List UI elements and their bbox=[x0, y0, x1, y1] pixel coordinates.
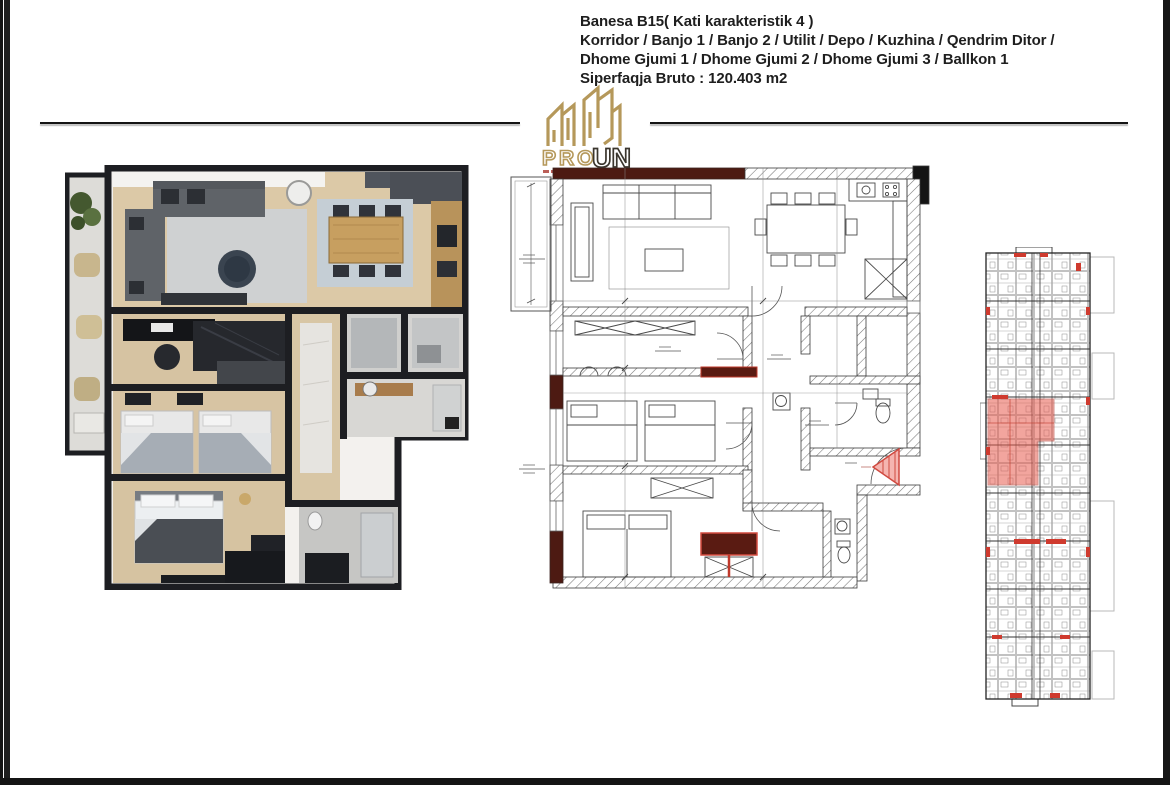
living-dining-kitchen bbox=[113, 172, 462, 307]
rendered-floor-plan bbox=[65, 165, 470, 590]
wall bbox=[340, 307, 347, 439]
wall bbox=[108, 474, 292, 481]
divider-line-right bbox=[650, 122, 1128, 124]
technical-floor-plan bbox=[505, 163, 935, 593]
floor-plan-sheet: Banesa B15( Kati karakteristik 4 ) Korri… bbox=[0, 0, 1170, 785]
bathroom-2 bbox=[299, 507, 398, 583]
office-room bbox=[113, 314, 285, 384]
gross-area: Siperfaqja Bruto : 120.403 m2 bbox=[580, 69, 1155, 88]
wall bbox=[108, 384, 292, 391]
balcony bbox=[67, 175, 111, 453]
building-key-plan bbox=[980, 247, 1125, 707]
sheet-right-border bbox=[1163, 0, 1170, 785]
room-list-line1: Korridor / Banjo 1 / Banjo 2 / Utilit / … bbox=[580, 31, 1155, 50]
drawn-balcony bbox=[511, 177, 551, 311]
divider-line-left bbox=[40, 122, 520, 124]
apartment-title: Banesa B15( Kati karakteristik 4 ) bbox=[580, 12, 1155, 31]
wall bbox=[347, 372, 468, 379]
sheet-bottom-border bbox=[0, 778, 1170, 785]
apartment-header: Banesa B15( Kati karakteristik 4 ) Korri… bbox=[580, 12, 1155, 88]
corridor bbox=[292, 314, 340, 504]
twin-bedroom bbox=[113, 391, 285, 474]
sheet-left-border bbox=[0, 0, 10, 785]
building-logo-icon: PRO UN bbox=[540, 82, 636, 176]
utility-depo-rooms bbox=[347, 307, 463, 372]
bathroom-1 bbox=[347, 379, 465, 437]
master-bedroom bbox=[113, 481, 285, 583]
room-list-line2: Dhome Gjumi 1 / Dhome Gjumi 2 / Dhome Gj… bbox=[580, 50, 1155, 69]
dimension-labels bbox=[519, 255, 871, 473]
wall bbox=[292, 500, 398, 507]
logo-buildings bbox=[548, 88, 620, 146]
